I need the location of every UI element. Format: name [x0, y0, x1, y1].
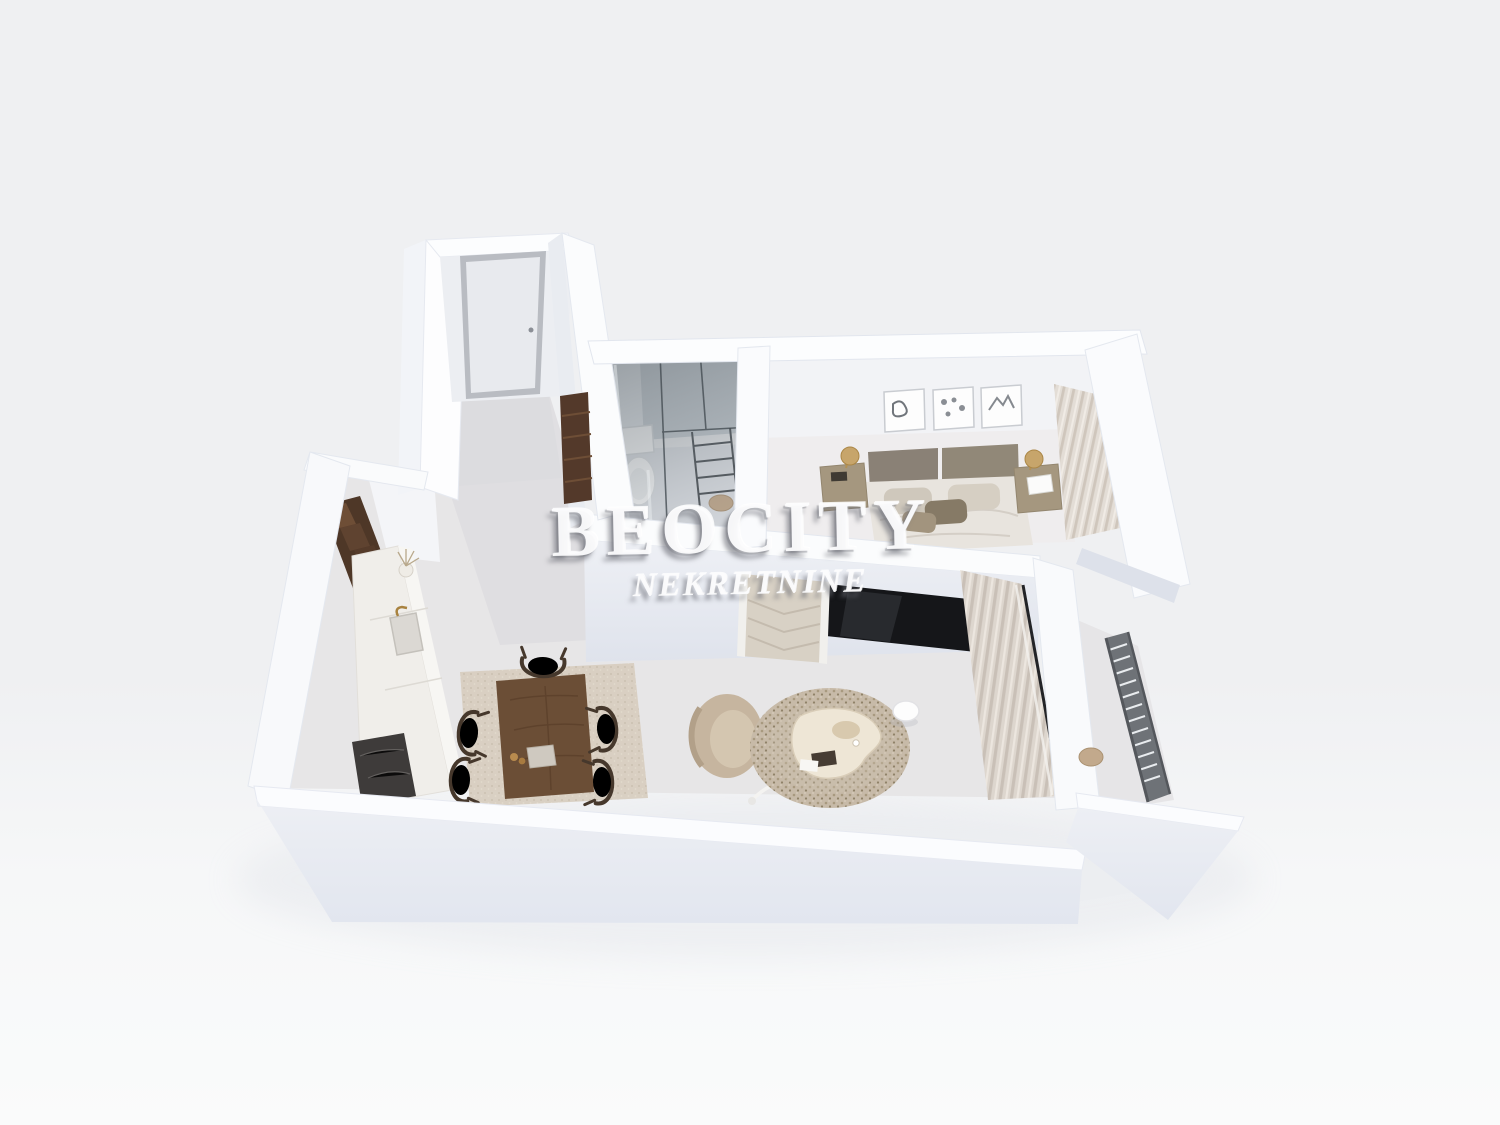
floorplan-svg	[0, 0, 1500, 1125]
corridor-floor	[445, 390, 562, 487]
picture-frame-2	[933, 387, 974, 430]
open-book	[1027, 474, 1053, 494]
sideboard	[737, 573, 830, 664]
lamp-right	[1025, 450, 1043, 468]
floorplan-render	[0, 0, 1500, 1125]
wall-art-frames	[884, 385, 1022, 432]
double-bed	[866, 444, 1033, 553]
accent-pillow-2	[901, 510, 937, 533]
table-tray	[527, 745, 556, 768]
bathroom-bedroom-wall	[734, 346, 770, 549]
door-handle-icon	[529, 328, 534, 333]
floor-lamp-base	[748, 797, 756, 805]
coffee-cup-icon	[853, 740, 859, 746]
gold-ball-2	[519, 758, 526, 765]
coffee-table-tray	[832, 721, 860, 739]
side-table	[893, 701, 919, 721]
coffee-table-magazine	[799, 759, 818, 772]
lamp-left	[841, 447, 859, 465]
wardrobe-body	[560, 392, 592, 504]
entrance-door	[466, 257, 540, 393]
picture-frame-3	[981, 385, 1022, 428]
picture-frame-1	[884, 389, 925, 432]
gold-ball-1	[510, 753, 518, 761]
bedroom-back-wall-face	[756, 348, 1104, 438]
balcony-stool	[1079, 748, 1103, 766]
hallway-wardrobe	[560, 392, 592, 504]
nightstand-left-body	[820, 463, 868, 511]
clock-icon	[831, 472, 847, 482]
